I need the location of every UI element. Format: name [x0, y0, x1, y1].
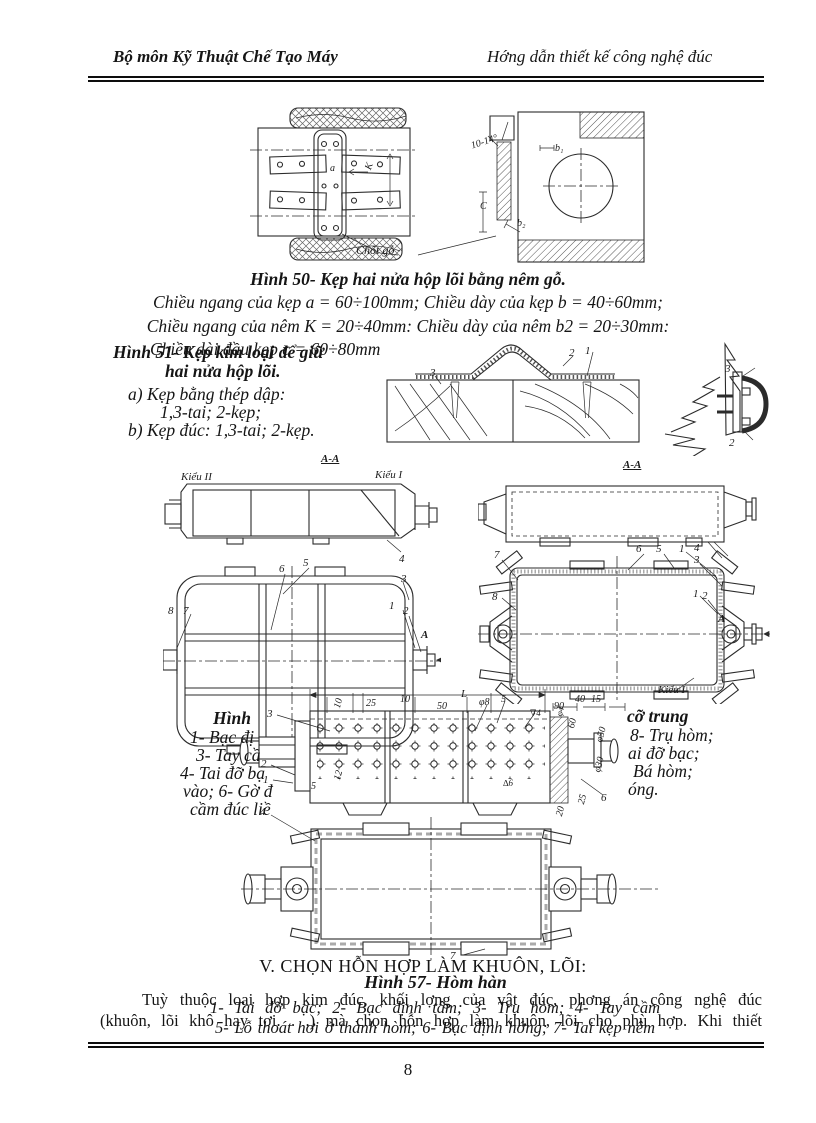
figure-label: 6: [601, 793, 607, 804]
figure-label: b₂: [517, 219, 525, 229]
figure-label: 40: [575, 695, 585, 705]
figure-label: 5: [501, 695, 506, 705]
figure-label: 8: [492, 592, 498, 603]
figure-label: 3: [401, 574, 407, 585]
figure-label: Kiểu I: [375, 470, 402, 481]
figure-label: A-A: [623, 460, 641, 471]
figure-label: 15: [591, 695, 601, 705]
figure-label: 6: [279, 564, 285, 575]
figure-label: a: [330, 164, 335, 174]
figure-label: ∇4: [530, 709, 541, 718]
figure-mold-box-right: A-A765143812AKiểu I: [478, 438, 770, 704]
figure-57-drawing: L10251050φ85∇49040153214512∆6φ460φ50φ302…: [235, 683, 665, 963]
figure-label: 7: [183, 606, 189, 617]
figure-label: L: [461, 689, 467, 700]
figure-label: 50: [437, 702, 447, 712]
figure-label: 5: [303, 558, 309, 569]
figure-label: 10: [400, 695, 410, 705]
figure-label: 8: [168, 606, 174, 617]
figure-label: C: [480, 202, 487, 212]
figure-label: 3: [430, 368, 436, 379]
figure-57-caption-fragment: Hình: [213, 708, 251, 729]
figure-label: 5: [656, 544, 662, 555]
figure-label: 2: [403, 606, 409, 617]
header-rule: [88, 76, 764, 82]
figure-57-caption-fragment: cầm đúc liề: [190, 799, 271, 820]
figure-label: 4: [694, 543, 700, 554]
figure-label: 1: [693, 589, 699, 600]
figure-label: Chốt gỗ: [356, 244, 394, 256]
page-number: 8: [0, 1060, 816, 1080]
figure-51-caption-line2: hai nửa hộp lõi.: [165, 361, 281, 382]
figure-label: ∆6: [503, 779, 513, 788]
figure-50-note-2: Chiều ngang của nêm K = 20÷40mm: Chiều d…: [0, 316, 816, 337]
header-left: Bộ môn Kỹ Thuật Chế Tạo Máy: [113, 47, 338, 67]
figure-label: 2: [702, 591, 708, 602]
figure-57-caption-fragment: cỡ trung: [627, 706, 688, 727]
figure-label: φ8: [479, 698, 490, 708]
figure-label: A: [718, 614, 725, 625]
figure-label: 4: [399, 554, 405, 565]
figure-label: 1: [679, 544, 685, 555]
figure-label: Kiểu II: [181, 472, 212, 483]
figure-label: 3: [725, 364, 731, 375]
figure-label: A-A: [321, 454, 339, 465]
figure-51-caption-line1: Hình 51- Kẹp kim loại để giữ: [113, 342, 324, 363]
figure-label: 7: [494, 550, 500, 561]
figure-57-caption-fragment: óng.: [628, 779, 659, 800]
figure-label: 25: [366, 699, 376, 709]
footer-rule: [88, 1042, 764, 1048]
figure-50-caption: Hình 50- Kẹp hai nửa hộp lõi bằng nêm gỗ…: [0, 269, 816, 290]
figure-label: A: [421, 630, 428, 641]
figure-50-drawing: 10-14°b₁Cb₂Chốt gỗaK: [250, 106, 650, 271]
header-right: Hớng dẫn thiết kế công nghệ đúc: [487, 47, 712, 67]
figure-57-caption-overlap-2: 5- Lỗ thoát hơi ở thành hòm; 6- Bạc định…: [215, 1018, 655, 1038]
figure-label: 3: [694, 555, 700, 566]
figure-51-item-b: b) Kẹp đúc: 1,3-tai; 2-kẹp.: [128, 420, 315, 441]
figure-label: 1: [585, 346, 591, 357]
figure-label: 5: [311, 782, 316, 792]
figure-label: 3: [267, 709, 273, 720]
figure-label: 1: [389, 601, 395, 612]
figure-label: 6: [636, 544, 642, 555]
document-page: Bộ môn Kỹ Thuật Chế Tạo Máy Hớng dẫn thi…: [0, 0, 816, 1123]
figure-label: 2: [569, 348, 575, 359]
figure-50-note-1: Chiều ngang của kẹp a = 60÷100mm; Chiều …: [0, 292, 816, 313]
figure-label: b₁: [555, 144, 563, 154]
